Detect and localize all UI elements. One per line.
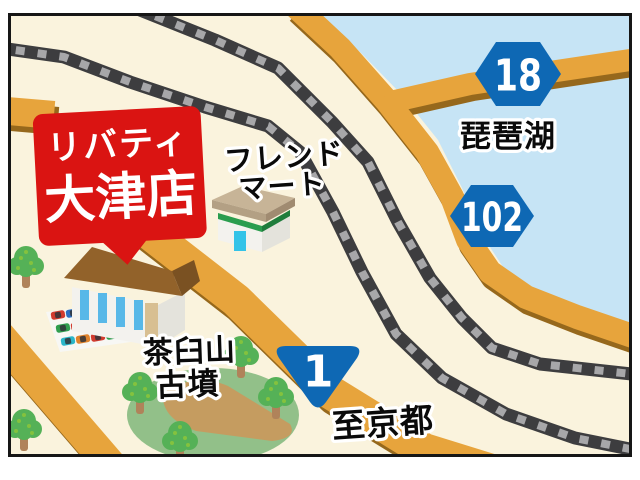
route-number: 18 bbox=[494, 51, 542, 102]
svg-text:古墳: 古墳 bbox=[155, 366, 220, 404]
route-number: 102 bbox=[461, 195, 523, 241]
svg-text:茶臼山: 茶臼山 bbox=[142, 333, 236, 371]
map-canvas: 18 102 1 琵琶湖 フレンド マート 茶臼山 古墳 至京都 リバティ 大津… bbox=[0, 0, 640, 480]
lake-biwa-label: 琵琶湖 bbox=[460, 119, 556, 155]
route-number: 1 bbox=[303, 347, 334, 398]
store-name-line1: リバティ bbox=[46, 121, 190, 168]
route-badge-102: 102 bbox=[450, 185, 534, 247]
svg-text:マート: マート bbox=[238, 167, 327, 206]
store-name-line2: 大津店 bbox=[43, 165, 199, 232]
to-kyoto-label: 至京都 bbox=[331, 400, 435, 446]
store-access-map: 18 102 1 琵琶湖 フレンド マート 茶臼山 古墳 至京都 リバティ 大津… bbox=[0, 0, 640, 480]
